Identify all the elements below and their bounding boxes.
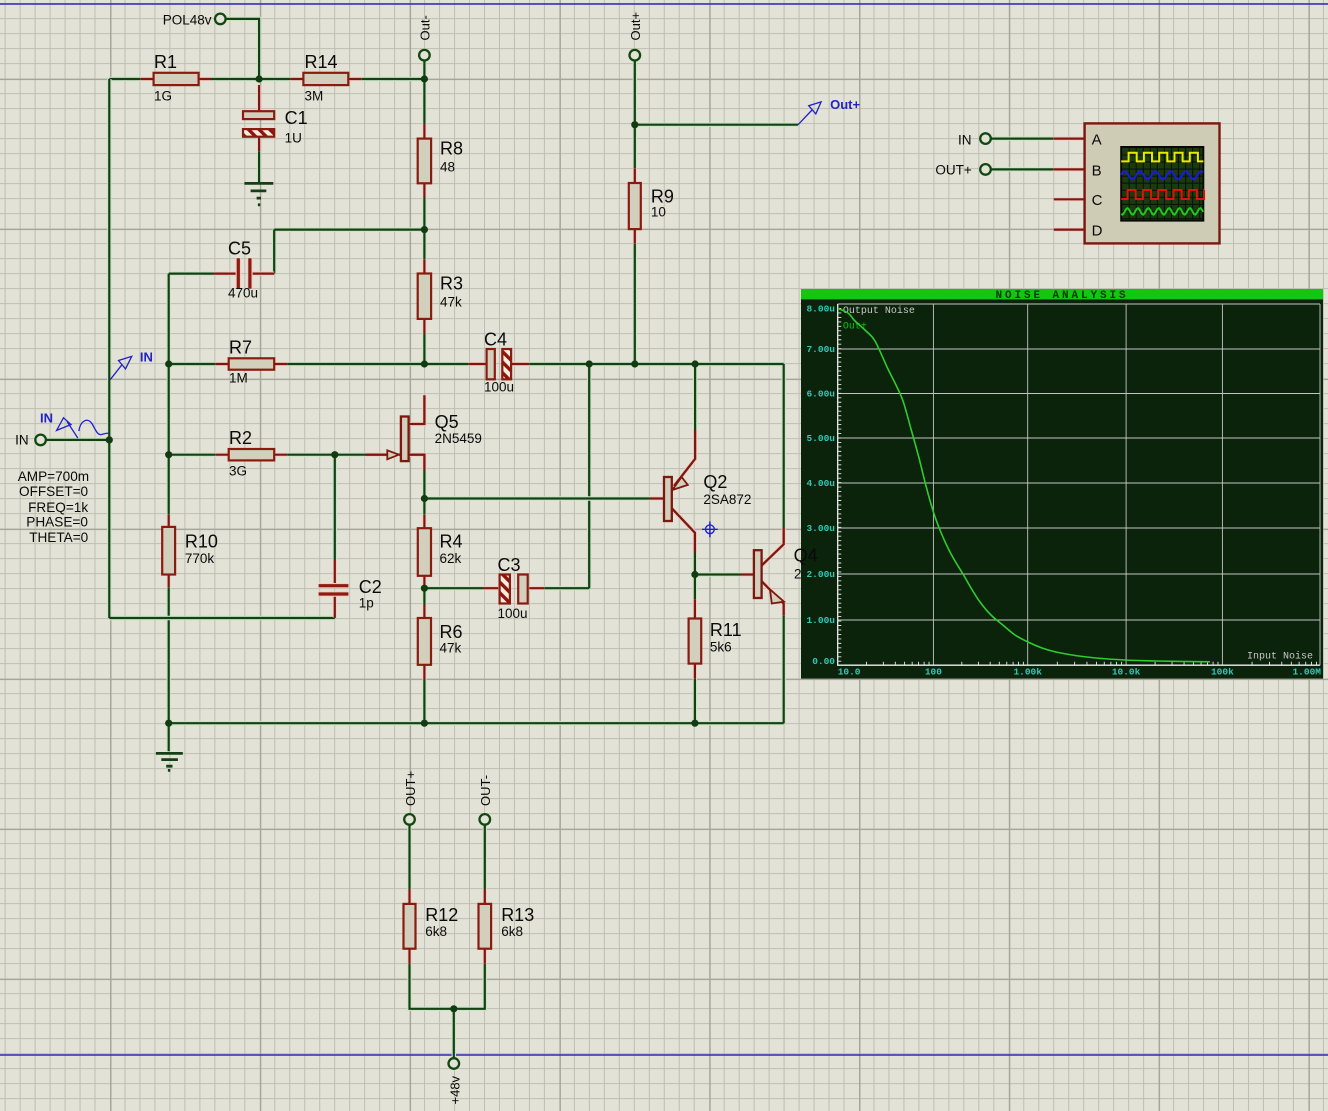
svg-text:6k8: 6k8	[425, 924, 447, 939]
svg-text:R2: R2	[229, 428, 252, 448]
svg-text:100u: 100u	[498, 606, 528, 621]
svg-text:C5: C5	[228, 239, 251, 259]
svg-text:FREQ=1k: FREQ=1k	[28, 500, 88, 515]
svg-text:IN: IN	[958, 133, 972, 148]
svg-text:2SA872: 2SA872	[703, 492, 751, 507]
svg-text:2N5459: 2N5459	[435, 431, 482, 446]
svg-text:R1: R1	[154, 52, 177, 72]
svg-text:6.00u: 6.00u	[806, 389, 835, 400]
svg-text:62k: 62k	[440, 551, 462, 566]
svg-text:R4: R4	[440, 532, 463, 552]
svg-text:4.00u: 4.00u	[806, 478, 835, 489]
svg-text:R14: R14	[305, 52, 338, 72]
svg-text:NOISE ANALYSIS: NOISE ANALYSIS	[995, 290, 1128, 302]
svg-text:THETA=0: THETA=0	[29, 530, 88, 545]
svg-text:3.00u: 3.00u	[806, 523, 835, 534]
svg-text:POL48v: POL48v	[163, 13, 212, 28]
svg-text:1G: 1G	[154, 89, 172, 104]
svg-text:R10: R10	[185, 532, 218, 552]
svg-text:Q4: Q4	[794, 546, 818, 566]
svg-text:C: C	[1092, 192, 1103, 209]
svg-text:770k: 770k	[185, 551, 215, 566]
svg-text:OUT+: OUT+	[935, 163, 971, 178]
svg-text:Out-: Out-	[418, 15, 433, 40]
svg-text:47k: 47k	[440, 295, 462, 310]
svg-text:100u: 100u	[484, 380, 514, 395]
svg-text:Q5: Q5	[435, 412, 459, 432]
svg-text:2.00u: 2.00u	[806, 569, 835, 580]
svg-text:R3: R3	[440, 274, 463, 294]
svg-text:IN: IN	[40, 410, 53, 425]
svg-text:D: D	[1092, 223, 1103, 240]
svg-text:5k6: 5k6	[710, 640, 732, 655]
svg-text:7.00u: 7.00u	[806, 344, 835, 355]
svg-text:OUT-: OUT-	[478, 775, 493, 806]
svg-text:C3: C3	[498, 555, 521, 575]
svg-text:R13: R13	[501, 905, 534, 925]
svg-text:10.0k: 10.0k	[1112, 667, 1141, 678]
svg-text:R6: R6	[440, 622, 463, 642]
svg-text:10.0: 10.0	[838, 667, 861, 678]
svg-text:5.00u: 5.00u	[806, 433, 835, 444]
svg-text:OUT+: OUT+	[403, 771, 418, 806]
svg-text:R8: R8	[440, 139, 463, 159]
svg-text:8.00u: 8.00u	[806, 304, 835, 315]
svg-text:3G: 3G	[229, 464, 247, 479]
svg-text:C1: C1	[285, 108, 308, 128]
svg-text:470u: 470u	[228, 285, 258, 300]
svg-text:3M: 3M	[305, 89, 324, 104]
svg-text:1.00u: 1.00u	[806, 615, 835, 626]
svg-text:A: A	[1092, 132, 1102, 149]
svg-text:AMP=700m: AMP=700m	[18, 469, 89, 484]
svg-text:Input Noise: Input Noise	[1247, 651, 1313, 663]
svg-text:Output Noise: Output Noise	[843, 305, 915, 317]
svg-text:C4: C4	[484, 330, 507, 350]
svg-text:IN: IN	[140, 349, 153, 364]
svg-text:B: B	[1092, 162, 1102, 179]
svg-text:0.00: 0.00	[812, 656, 835, 667]
svg-text:IN: IN	[15, 433, 29, 448]
svg-text:6k8: 6k8	[501, 924, 523, 939]
svg-text:C2: C2	[359, 577, 382, 597]
svg-text:OFFSET=0: OFFSET=0	[19, 484, 89, 499]
svg-text:1p: 1p	[359, 596, 374, 611]
svg-text:100k: 100k	[1211, 667, 1234, 678]
svg-text:10: 10	[651, 205, 666, 220]
svg-text:48: 48	[440, 160, 455, 175]
svg-text:R11: R11	[710, 620, 742, 640]
svg-text:R9: R9	[651, 187, 674, 207]
svg-text:R12: R12	[425, 905, 458, 925]
svg-text:Q2: Q2	[703, 472, 727, 492]
svg-text:1U: 1U	[285, 131, 302, 146]
svg-text:1.00k: 1.00k	[1013, 667, 1042, 678]
svg-text:PHASE=0: PHASE=0	[26, 515, 88, 530]
svg-text:2: 2	[794, 567, 802, 582]
svg-text:100: 100	[925, 667, 942, 678]
svg-text:1.00M: 1.00M	[1292, 667, 1321, 678]
svg-text:+48v: +48v	[447, 1075, 462, 1104]
svg-text:Out+: Out+	[628, 12, 643, 41]
svg-text:R7: R7	[229, 338, 252, 358]
svg-text:47k: 47k	[440, 641, 462, 656]
svg-text:Out+: Out+	[830, 97, 860, 112]
svg-text:1M: 1M	[229, 371, 248, 386]
svg-text:Out+: Out+	[843, 322, 867, 333]
